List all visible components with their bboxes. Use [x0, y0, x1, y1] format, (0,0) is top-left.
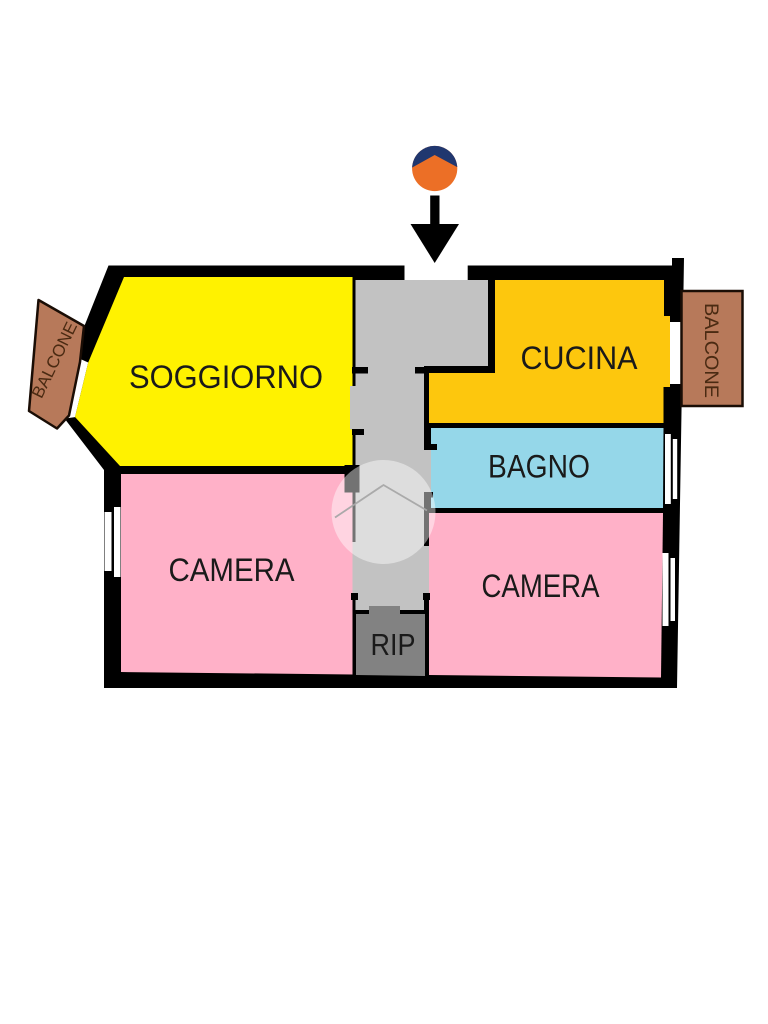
- svg-text:BALCONE: BALCONE: [700, 303, 721, 398]
- svg-text:SOGGIORNO: SOGGIORNO: [129, 359, 323, 395]
- svg-text:CUCINA: CUCINA: [521, 340, 639, 376]
- svg-text:RIP: RIP: [371, 627, 416, 662]
- svg-text:CAMERA: CAMERA: [482, 568, 601, 604]
- svg-text:CAMERA: CAMERA: [169, 552, 296, 588]
- svg-text:BAGNO: BAGNO: [488, 449, 590, 485]
